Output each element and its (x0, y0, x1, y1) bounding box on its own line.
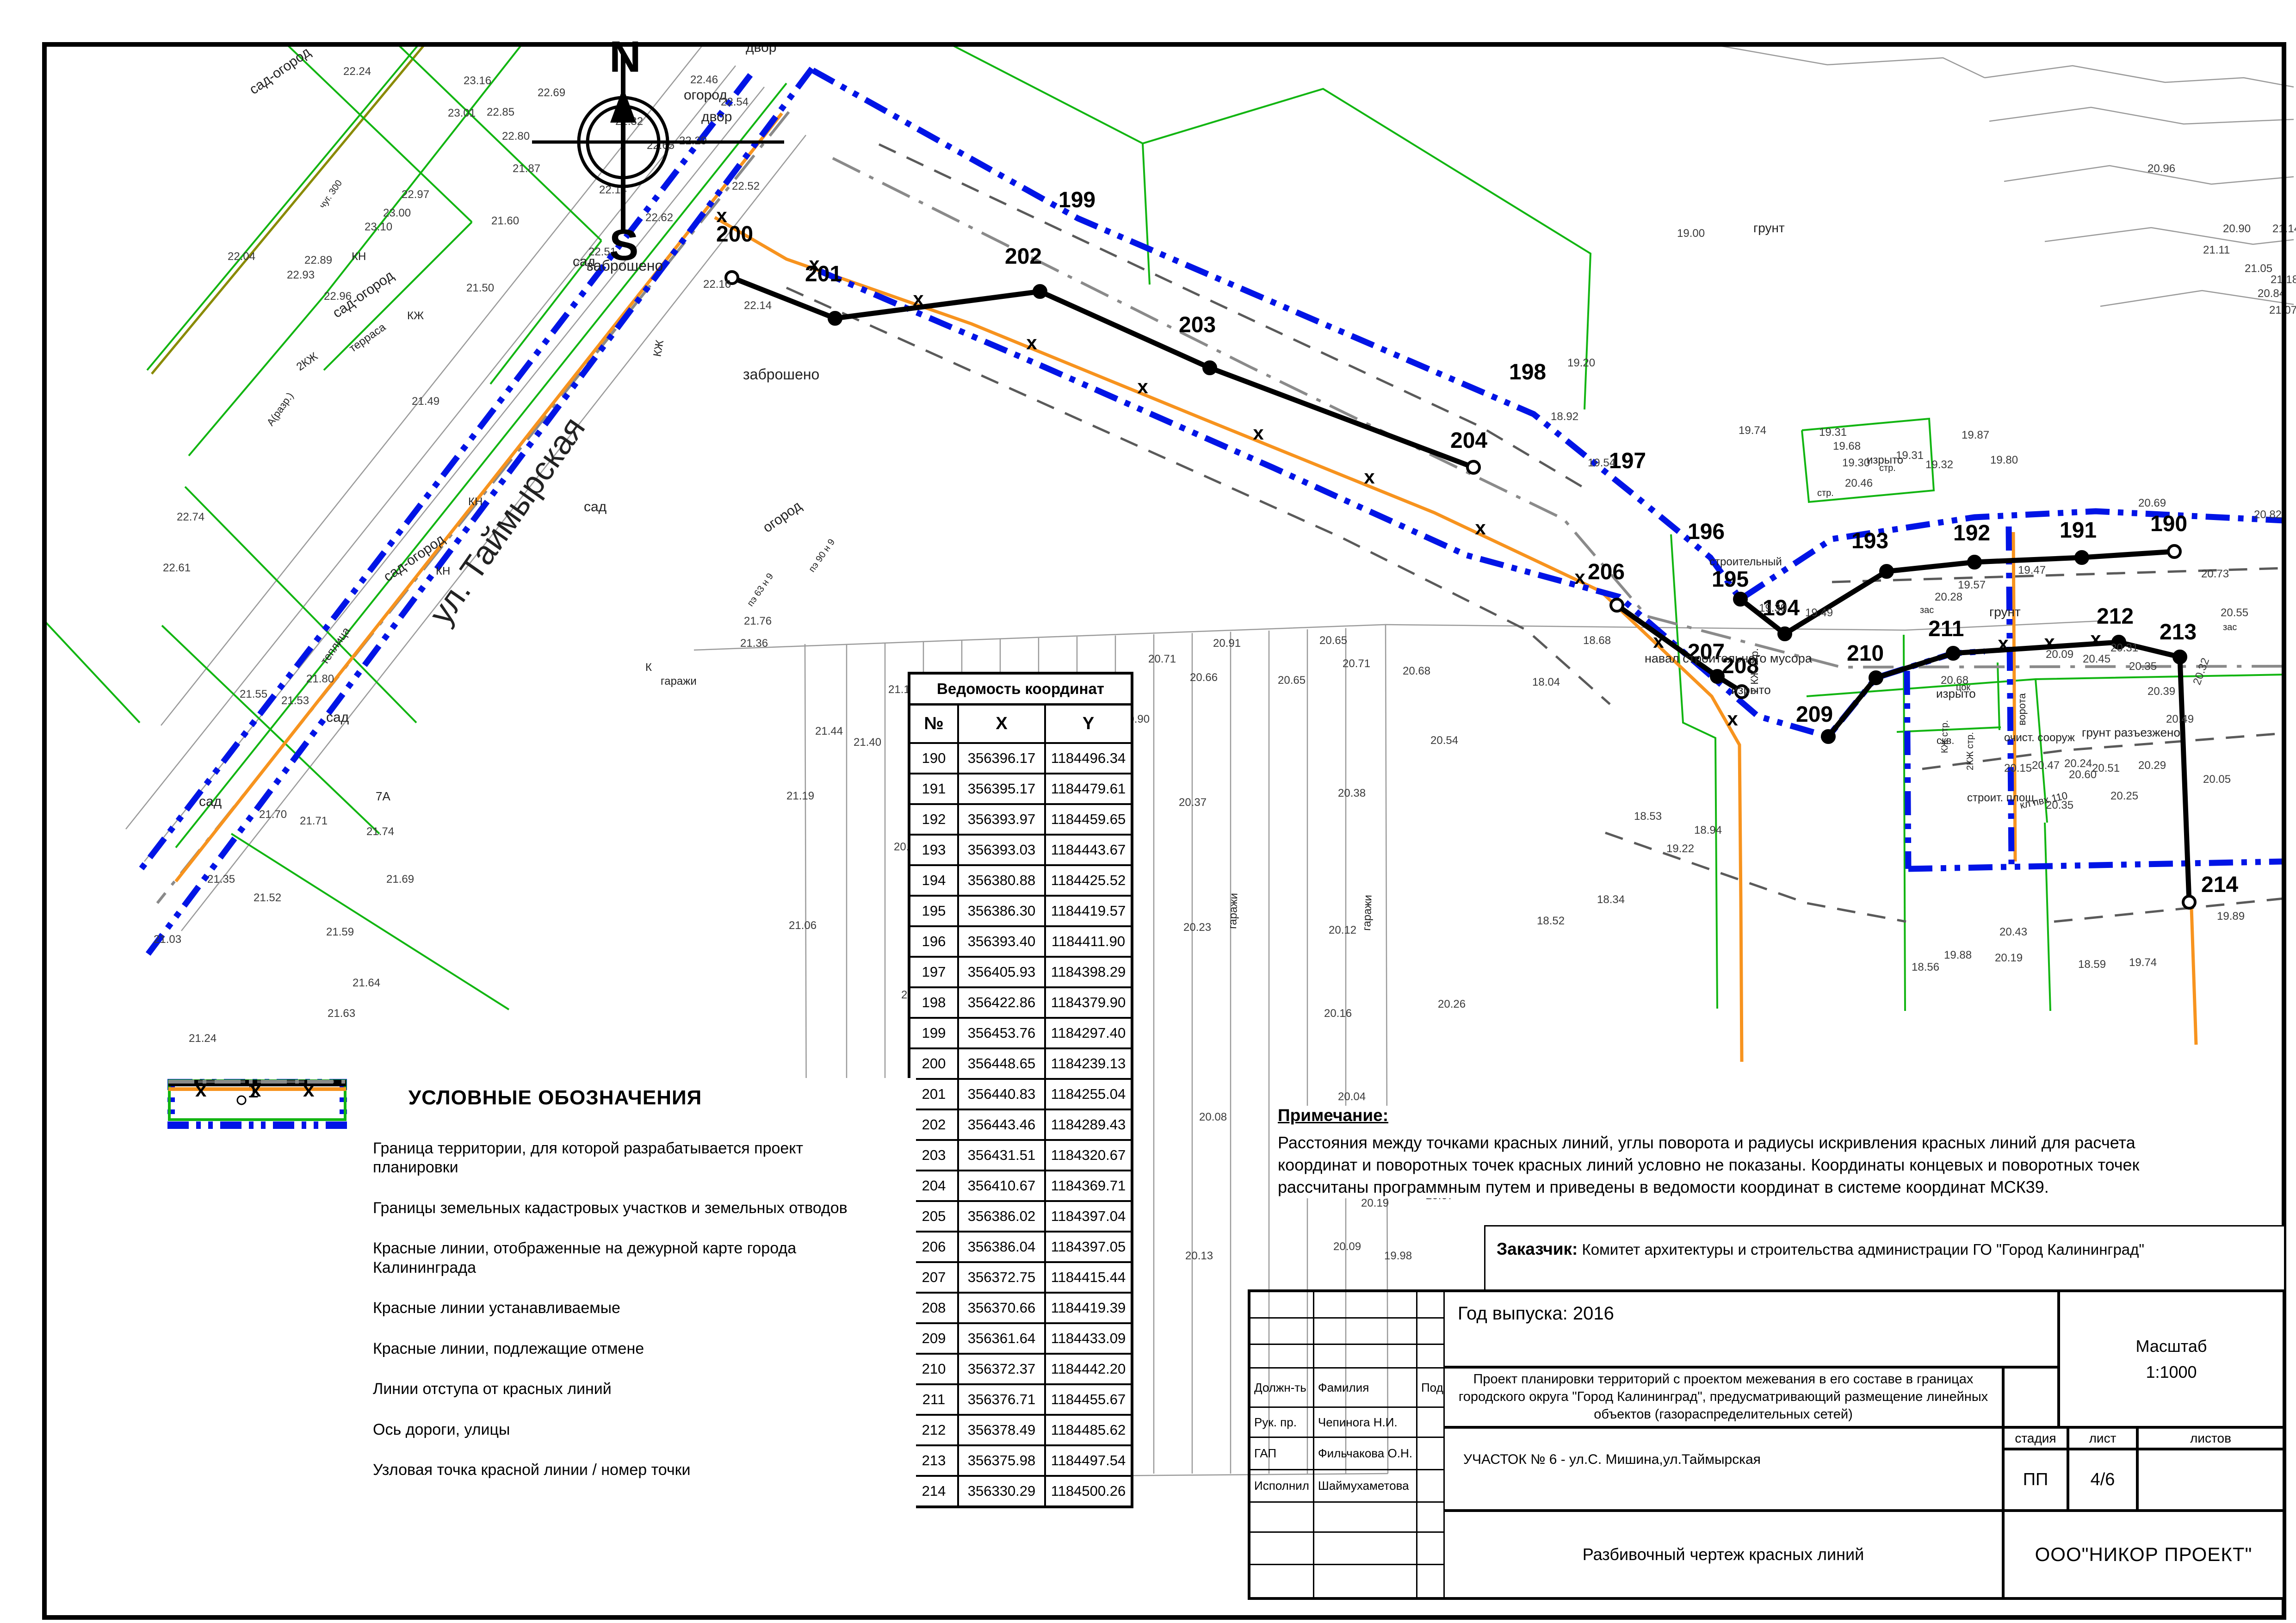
map-text-label: двор (701, 109, 732, 124)
red-line-node (1611, 599, 1623, 611)
elevation-label: 20.43 (1999, 926, 2027, 938)
legend-item-label: Линии отступа от красных линий (373, 1380, 612, 1399)
legend-item-node: 1Узловая точка красной линии / номер точ… (167, 1461, 916, 1480)
elevation-label: 20.08 (1199, 1111, 1227, 1123)
elevation-label: 18.92 (1551, 410, 1578, 423)
elevation-label: 22.14 (744, 299, 772, 312)
point-number-label: 199 (1058, 188, 1095, 212)
staff-cell: Фильчакова О.Н. (1313, 1437, 1417, 1470)
elevation-label: 20.55 (2221, 607, 2248, 619)
elevation-label: 20.25 (2110, 790, 2138, 802)
elevation-label: 21.49 (412, 395, 439, 408)
sheet-value: 4/6 (2068, 1449, 2137, 1511)
elevation-label: 22.61 (163, 562, 191, 574)
elevation-label: 21.40 (854, 736, 881, 749)
staff-cell (1313, 1565, 1417, 1599)
elevation-label: 20.68 (1941, 674, 1968, 687)
setback-line (1605, 833, 1906, 922)
staff-cell (1313, 1502, 1417, 1532)
contour-line (1985, 66, 2294, 87)
elevation-label: 20.45 (2083, 653, 2110, 665)
point-number-label: 211 (1928, 617, 1964, 641)
elevation-label: 18.94 (1694, 824, 1722, 836)
elevation-label: 21.06 (789, 919, 817, 932)
elevation-label: 21.05 (2245, 262, 2272, 275)
elevation-label: 20.19 (1995, 952, 2023, 964)
map-text-label: строительный (1709, 556, 1782, 568)
elevation-label: 22.54 (721, 96, 749, 108)
cancel-x-mark: x (913, 288, 924, 310)
table-row: 209356361.641184433.09 (909, 1323, 1132, 1354)
map-text-label: пэ 63 н 9 (745, 571, 775, 608)
elevation-label: 20.04 (1338, 1090, 1366, 1103)
map-text-label: сад (584, 499, 606, 514)
legend-item-axis: Ось дороги, улицы (167, 1420, 916, 1439)
elevation-label: 20.39 (2147, 685, 2175, 698)
customer-box: Заказчик: Комитет архитектуры и строител… (1484, 1225, 2285, 1291)
project-description: Проект планировки территорий с проектом … (1443, 1367, 2003, 1427)
table-row: 198356422.861184379.90 (909, 987, 1132, 1018)
elevation-label: 23.00 (383, 207, 411, 219)
cancel-x-mark: x (1653, 630, 1664, 652)
elevation-label: 22.96 (324, 290, 352, 303)
elevation-label: 20.09 (1333, 1240, 1361, 1253)
table-title: Ведомость координат (909, 673, 1132, 705)
table-row: 203356431.511184320.67 (909, 1140, 1132, 1171)
elevation-label: 21.69 (386, 873, 414, 886)
map-text-label: сад-огород (247, 44, 313, 98)
scale-box: Масштаб 1:1000 (2059, 1291, 2284, 1427)
staff-cell: Исполнил (1250, 1470, 1314, 1502)
staff-cell (1313, 1318, 1417, 1344)
elevation-label: 19.57 (1958, 579, 1986, 591)
elevation-label: 19.68 (1833, 440, 1861, 452)
map-text-label: 7А (376, 789, 390, 803)
elevation-label: 21.19 (786, 790, 814, 802)
table-row: 193356393.031184443.67 (909, 835, 1132, 865)
elevation-label: 19.88 (1944, 949, 1972, 961)
year-box: Год выпуска: 2016 (1443, 1291, 2059, 1367)
elevation-label: 21.63 (328, 1007, 355, 1020)
elevation-label: 22.52 (732, 180, 760, 192)
territory-boundary-line (1908, 861, 2284, 869)
elevation-label: 19.74 (2129, 956, 2157, 969)
elevation-label: 22.62 (645, 211, 673, 224)
elevation-label: 22.46 (690, 74, 718, 86)
map-text-label: гаражи (661, 675, 697, 688)
point-number-label: 214 (2201, 873, 2238, 897)
staff-cell (1250, 1532, 1314, 1565)
elevation-label: 22.16 (703, 278, 731, 291)
elevation-label: 21.59 (326, 926, 354, 938)
svg-text:1: 1 (248, 1079, 259, 1102)
duty-map-red-line (2013, 532, 2015, 861)
table-row: 195356386.301184419.57 (909, 896, 1132, 926)
cancel-x-mark: x (2090, 628, 2101, 650)
map-text-label: КЖ (407, 310, 424, 322)
cancel-x-mark: x (1026, 332, 1037, 353)
cadastral-boundary-line (44, 621, 140, 723)
point-number-label: 191 (2060, 518, 2097, 543)
map-text-label: чуг. 300 (317, 178, 344, 211)
map-text-label: А(разр.) (265, 390, 296, 427)
elevation-label: 21.76 (744, 615, 772, 627)
staff-cell (1250, 1565, 1314, 1599)
map-text-label: зас (2223, 622, 2237, 632)
elevation-label: 19.74 (1739, 424, 1766, 437)
table-row: 196356393.401184411.90 (909, 926, 1132, 957)
cancel-x-mark: x (1137, 376, 1148, 397)
red-line-node (1822, 731, 1834, 743)
legend-item-label: Узловая точка красной линии / номер точк… (373, 1461, 691, 1480)
map-text-label: К (645, 661, 652, 674)
cancel-x-mark: x (1253, 422, 1264, 444)
cancel-x-mark: x (1475, 517, 1486, 539)
staff-cell (1250, 1292, 1314, 1318)
point-number-label: 192 (1953, 521, 1990, 545)
elevation-label: 18.53 (1634, 810, 1662, 823)
col-y: Y (1045, 705, 1132, 743)
elevation-label: 23.16 (464, 74, 491, 87)
staff-cell: Фамилия (1313, 1368, 1417, 1407)
legend-item-label: Красные линии, подлежащие отмене (373, 1339, 644, 1358)
map-text-label: КЖ стр. (1940, 720, 1950, 753)
svg-text:S: S (609, 221, 638, 270)
elevation-label: 20.60 (2069, 768, 2097, 781)
staff-cell: ГАП (1250, 1437, 1314, 1470)
cadastral-boundary-line (185, 487, 416, 723)
elevation-label: 19.39 (1759, 602, 1787, 614)
staff-cell (1313, 1344, 1417, 1368)
elevation-label: 22.89 (304, 254, 332, 266)
legend-item-boundary: Граница территории, для которой разрабат… (167, 1139, 916, 1177)
point-number-label: 210 (1847, 641, 1884, 666)
staff-cell: Должн-ть (1250, 1368, 1314, 1407)
elevation-label: 18.68 (1583, 634, 1611, 647)
elevation-label: 20.69 (2138, 497, 2166, 509)
elevation-label: 18.34 (1597, 893, 1625, 906)
cancel-x-mark: x (1364, 466, 1375, 488)
elevation-label: 19.31 (1819, 426, 1847, 439)
table-header-row: № X Y (909, 705, 1132, 743)
elevation-label: 20.37 (1179, 796, 1207, 809)
elevation-label: 20.05 (2203, 773, 2231, 786)
customer-label: Заказчик: (1497, 1239, 1578, 1258)
sheet-col-label: лист (2068, 1427, 2137, 1449)
elevation-label: 19.00 (1677, 227, 1705, 240)
legend-item-label: Ось дороги, улицы (373, 1420, 510, 1439)
sheets-col-label: листов (2137, 1427, 2284, 1449)
elevation-label: 20.23 (1183, 921, 1211, 934)
coordinates-table: Ведомость координат № X Y 190356396.1711… (908, 672, 1133, 1508)
map-text-label: грунт (1753, 221, 1785, 235)
table-row: 207356372.751184415.44 (909, 1262, 1132, 1293)
table-row: 206356386.041184397.05 (909, 1232, 1132, 1262)
elevation-label: 21.44 (815, 725, 843, 737)
map-text-label: грунт разъезжено (2082, 725, 2180, 739)
contour-line (1989, 107, 2294, 124)
elevation-label: 21.70 (259, 808, 287, 821)
spacer-cell (2003, 1367, 2059, 1427)
elevation-label: 20.71 (1343, 657, 1370, 670)
elevation-label: 21.64 (353, 977, 380, 989)
elevation-label: 20.73 (2201, 568, 2229, 580)
table-row: 212356378.491184485.62 (909, 1415, 1132, 1445)
elevation-label: 19.31 (1896, 449, 1924, 462)
elevation-label: 20.29 (2138, 759, 2166, 772)
elevation-label: 19.89 (2217, 910, 2245, 923)
elevation-label: 22.80 (502, 130, 530, 142)
elevation-label: 21.03 (154, 933, 181, 946)
elevation-label: 21.50 (466, 282, 494, 294)
legend: УСЛОВНЫЕ ОБОЗНАЧЕНИЯ Граница территории,… (167, 1078, 916, 1511)
table-row: 205356386.021184397.04 (909, 1201, 1132, 1232)
scale-value: 1:1000 (2060, 1363, 2283, 1382)
map-text-label: пэ 90 н 9 (807, 537, 837, 574)
table-row: 211356376.711184455.67 (909, 1384, 1132, 1415)
map-text-label: 2КЖ стр. (1965, 732, 1975, 770)
drawing-name: Разбивочный чертеж красных линий (1443, 1511, 2003, 1598)
cadastral-boundary-line (287, 44, 472, 222)
table-row: 213356375.981184497.54 (909, 1445, 1132, 1476)
elevation-label: 18.56 (1912, 961, 1939, 973)
legend-item-cadastre: Границы земельных кадастровых участков и… (167, 1199, 916, 1218)
red-line-node (1947, 647, 1959, 659)
map-text-label: 2КЖ (294, 350, 320, 373)
elevation-label: 20.31 (2110, 642, 2138, 654)
contour-line (2045, 228, 2294, 244)
elevation-label: 21.35 (207, 873, 235, 886)
elevation-label: 20.65 (1319, 634, 1347, 647)
point-number-label: 190 (2150, 512, 2187, 536)
red-line-node (1034, 285, 1046, 297)
territory-boundary-line (2009, 527, 2011, 864)
elevation-label: 20.09 (2046, 648, 2073, 661)
point-number-label: 204 (1450, 428, 1487, 453)
map-text-label: сад (326, 710, 349, 725)
elevation-label: 20.54 (1430, 734, 1458, 747)
red-line-node (1870, 672, 1882, 684)
elevation-label: 18.52 (1537, 915, 1565, 927)
map-text-label: навал строительного мусора (1645, 651, 1813, 665)
map-text-label: ворота (2016, 693, 2028, 725)
legend-item-black: Красные линии устанавливаемые (167, 1299, 916, 1318)
table-row: 210356372.371184442.20 (909, 1354, 1132, 1384)
elevation-label: 19.47 (2018, 564, 2046, 576)
company-name: ООО"НИКОР ПРОЕКТ" (2003, 1511, 2284, 1598)
point-number-label: 201 (805, 262, 842, 286)
elevation-label: 22.85 (487, 106, 514, 118)
table-row: 214356330.291184500.26 (909, 1476, 1132, 1507)
map-text-label: КЖ (651, 339, 666, 358)
cadastral-boundary-line (1998, 663, 1999, 730)
elevation-label: 21.53 (281, 694, 309, 707)
elevation-label: 19.20 (1567, 357, 1595, 369)
elevation-label: 19.80 (1990, 454, 2018, 466)
elevation-label: 20.82 (2254, 508, 2282, 521)
stage-col-label: стадия (2003, 1427, 2068, 1449)
red-line-node (1467, 461, 1479, 473)
staff-cell: Шаймухаметова (1313, 1470, 1417, 1502)
point-number-label: 212 (2097, 604, 2134, 629)
elevation-label: 21.74 (366, 825, 394, 838)
legend-item-orange: Красные линии, отображенные на дежурной … (167, 1239, 916, 1277)
point-number-label: 206 (1588, 560, 1625, 584)
elevation-label: 21.60 (491, 215, 519, 227)
cadastral-boundary-line (176, 83, 786, 848)
point-number-label: 203 (1179, 313, 1216, 337)
elevation-label: 21.80 (306, 673, 334, 685)
elevation-label: 19.32 (1925, 458, 1953, 471)
territory-boundary-line (140, 75, 750, 871)
elevation-label: 23.10 (365, 221, 392, 233)
staff-cell (1313, 1292, 1417, 1318)
map-text-label: гаражи (1226, 893, 1240, 929)
legend-item-setback: Линии отступа от красных линий (167, 1380, 916, 1399)
map-text-label: грунт (1989, 605, 2021, 619)
elevation-label: 21.24 (189, 1032, 217, 1045)
red-line-node (1204, 362, 1216, 374)
map-text-label: зас (1920, 605, 1934, 615)
table-row: 204356410.671184369.71 (909, 1171, 1132, 1201)
legend-item-label: Границы земельных кадастровых участков и… (373, 1199, 848, 1218)
elevation-label: 21.55 (240, 688, 267, 700)
elevation-label: 20.49 (2166, 713, 2194, 725)
elevation-label: 18.59 (2078, 958, 2106, 971)
elevation-label: 19.87 (1962, 429, 1989, 441)
elevation-label: 19.54 (1588, 457, 1615, 469)
legend-items: Граница территории, для которой разрабат… (167, 1139, 916, 1480)
table-row: 208356370.661184419.39 (909, 1293, 1132, 1323)
red-line-node (1734, 593, 1746, 605)
elevation-label: 23.01 (448, 107, 476, 119)
elevation-label: 22.97 (402, 188, 429, 201)
red-line-node (2168, 545, 2180, 558)
elevation-label: 20.15 (2004, 762, 2032, 774)
elevation-label: 20.47 (2032, 759, 2060, 772)
map-text-label: теплица (318, 625, 353, 667)
map-text-label: гаражи (1361, 895, 1374, 931)
elevation-label: 20.28 (1935, 591, 1962, 603)
stage-value: ПП (2003, 1449, 2068, 1511)
coord-table-body: 190356396.171184496.34191356395.17118447… (909, 743, 1132, 1507)
table-row: 200356448.651184239.13 (909, 1048, 1132, 1079)
legend-item-label: Граница территории, для которой разрабат… (373, 1139, 859, 1177)
elevation-label: 22.93 (287, 269, 315, 281)
note-block: Примечание: Расстояния между точками кра… (1278, 1106, 2198, 1198)
duty-map-red-line (2191, 908, 2196, 1045)
site-box: УЧАСТОК № 6 - ул.С. Мишина,ул.Таймырская (1443, 1427, 2003, 1511)
table-row: 194356380.881184425.52 (909, 865, 1132, 896)
elevation-label: 20.12 (1329, 924, 1356, 936)
svg-text:N: N (609, 32, 641, 81)
map-text-label: 2 КЖ стр. (1749, 648, 1760, 693)
elevation-label: 22.69 (538, 87, 565, 99)
staff-cell (1250, 1502, 1314, 1532)
table-row: 192356393.971184459.65 (909, 804, 1132, 835)
point-number-label: 213 (2160, 620, 2197, 644)
staff-grid: Должн-тьФамилияПодписьРук. пр.Чепинога Н… (1249, 1291, 1443, 1598)
point-number-label: 195 (1712, 567, 1749, 592)
elevation-label: 22.74 (177, 511, 204, 523)
red-line-node (1968, 556, 1980, 568)
elevation-label: 20.46 (1845, 477, 1873, 489)
elevation-label: 20.66 (1190, 671, 1218, 684)
legend-item-cancel: xxxКрасные линии, подлежащие отмене (167, 1339, 916, 1358)
point-number-label: 209 (1796, 702, 1833, 727)
map-text-label: заброшено (743, 366, 819, 383)
elevation-label: 19.22 (1666, 842, 1694, 855)
map-text-label: очист. сооруж (2004, 731, 2075, 744)
map-text-label: двор (746, 40, 776, 55)
table-row: 201356440.831184255.04 (909, 1079, 1132, 1109)
cancel-x-mark: x (1727, 708, 1738, 730)
staff-cell (1250, 1318, 1314, 1344)
map-text-label: КН (352, 250, 366, 263)
map-text-label: ул. Таймырская (422, 410, 593, 631)
elevation-label: 20.91 (1213, 637, 1241, 650)
col-number: № (909, 705, 958, 743)
map-text-label: огород (760, 498, 805, 536)
point-number-label: 200 (716, 222, 753, 247)
cancel-x-mark: x (1998, 632, 2009, 654)
map-text-label: стр. (1879, 463, 1896, 473)
red-line-node (1779, 628, 1791, 640)
elevation-label: 20.26 (1438, 998, 1466, 1010)
cadastral-boundary-line (147, 44, 419, 370)
point-number-label: 196 (1688, 520, 1725, 544)
red-line-node (2183, 896, 2195, 908)
staff-cell (1313, 1532, 1417, 1565)
elevation-label: 20.65 (1278, 674, 1306, 687)
elevation-label: 20.24 (2064, 757, 2092, 770)
contour-line (1712, 44, 1985, 78)
elevation-label: 20.35 (2046, 799, 2073, 811)
elevation-label: 19.98 (1384, 1250, 1412, 1262)
point-number-label: 202 (1005, 244, 1042, 269)
road-edge-line (694, 621, 2103, 650)
elevation-label: 20.90 (2223, 223, 2251, 235)
table-row: 202356443.461184289.43 (909, 1109, 1132, 1140)
elevation-label: 20.71 (1148, 653, 1176, 665)
territory-boundary-line (819, 271, 1985, 737)
elevation-label: 20.16 (1324, 1007, 1352, 1020)
sheets-value (2137, 1449, 2284, 1511)
elevation-label: 21.52 (254, 892, 281, 904)
table-row: 191356395.171184479.61 (909, 774, 1132, 804)
table-row: 197356405.931184398.29 (909, 957, 1132, 987)
map-text-label: стр. (1817, 488, 1834, 498)
red-line-node (2174, 651, 2186, 663)
staff-cell: Рук. пр. (1250, 1407, 1314, 1437)
red-line-node (1881, 565, 1893, 577)
elevation-label: 20.19 (1361, 1197, 1389, 1209)
table-row: 190356396.171184496.34 (909, 743, 1132, 774)
elevation-label: 21.87 (513, 162, 540, 175)
note-text: Расстояния между точками красных линий, … (1278, 1132, 2198, 1198)
red-line-node (829, 312, 841, 324)
point-number-label: 193 (1851, 529, 1888, 553)
elevation-label: 20.32 (2191, 656, 2212, 687)
map-text-label: КН (436, 565, 450, 577)
setback-line (2054, 898, 2284, 922)
scale-label: Масштаб (2060, 1337, 2283, 1356)
elevation-label: 20.84 (2258, 287, 2285, 300)
staff-cell: Чепинога Н.И. (1313, 1407, 1417, 1437)
map-text-label: КН (468, 496, 483, 508)
red-line-node (2076, 551, 2088, 564)
elevation-label: 19.30 (1842, 457, 1870, 469)
